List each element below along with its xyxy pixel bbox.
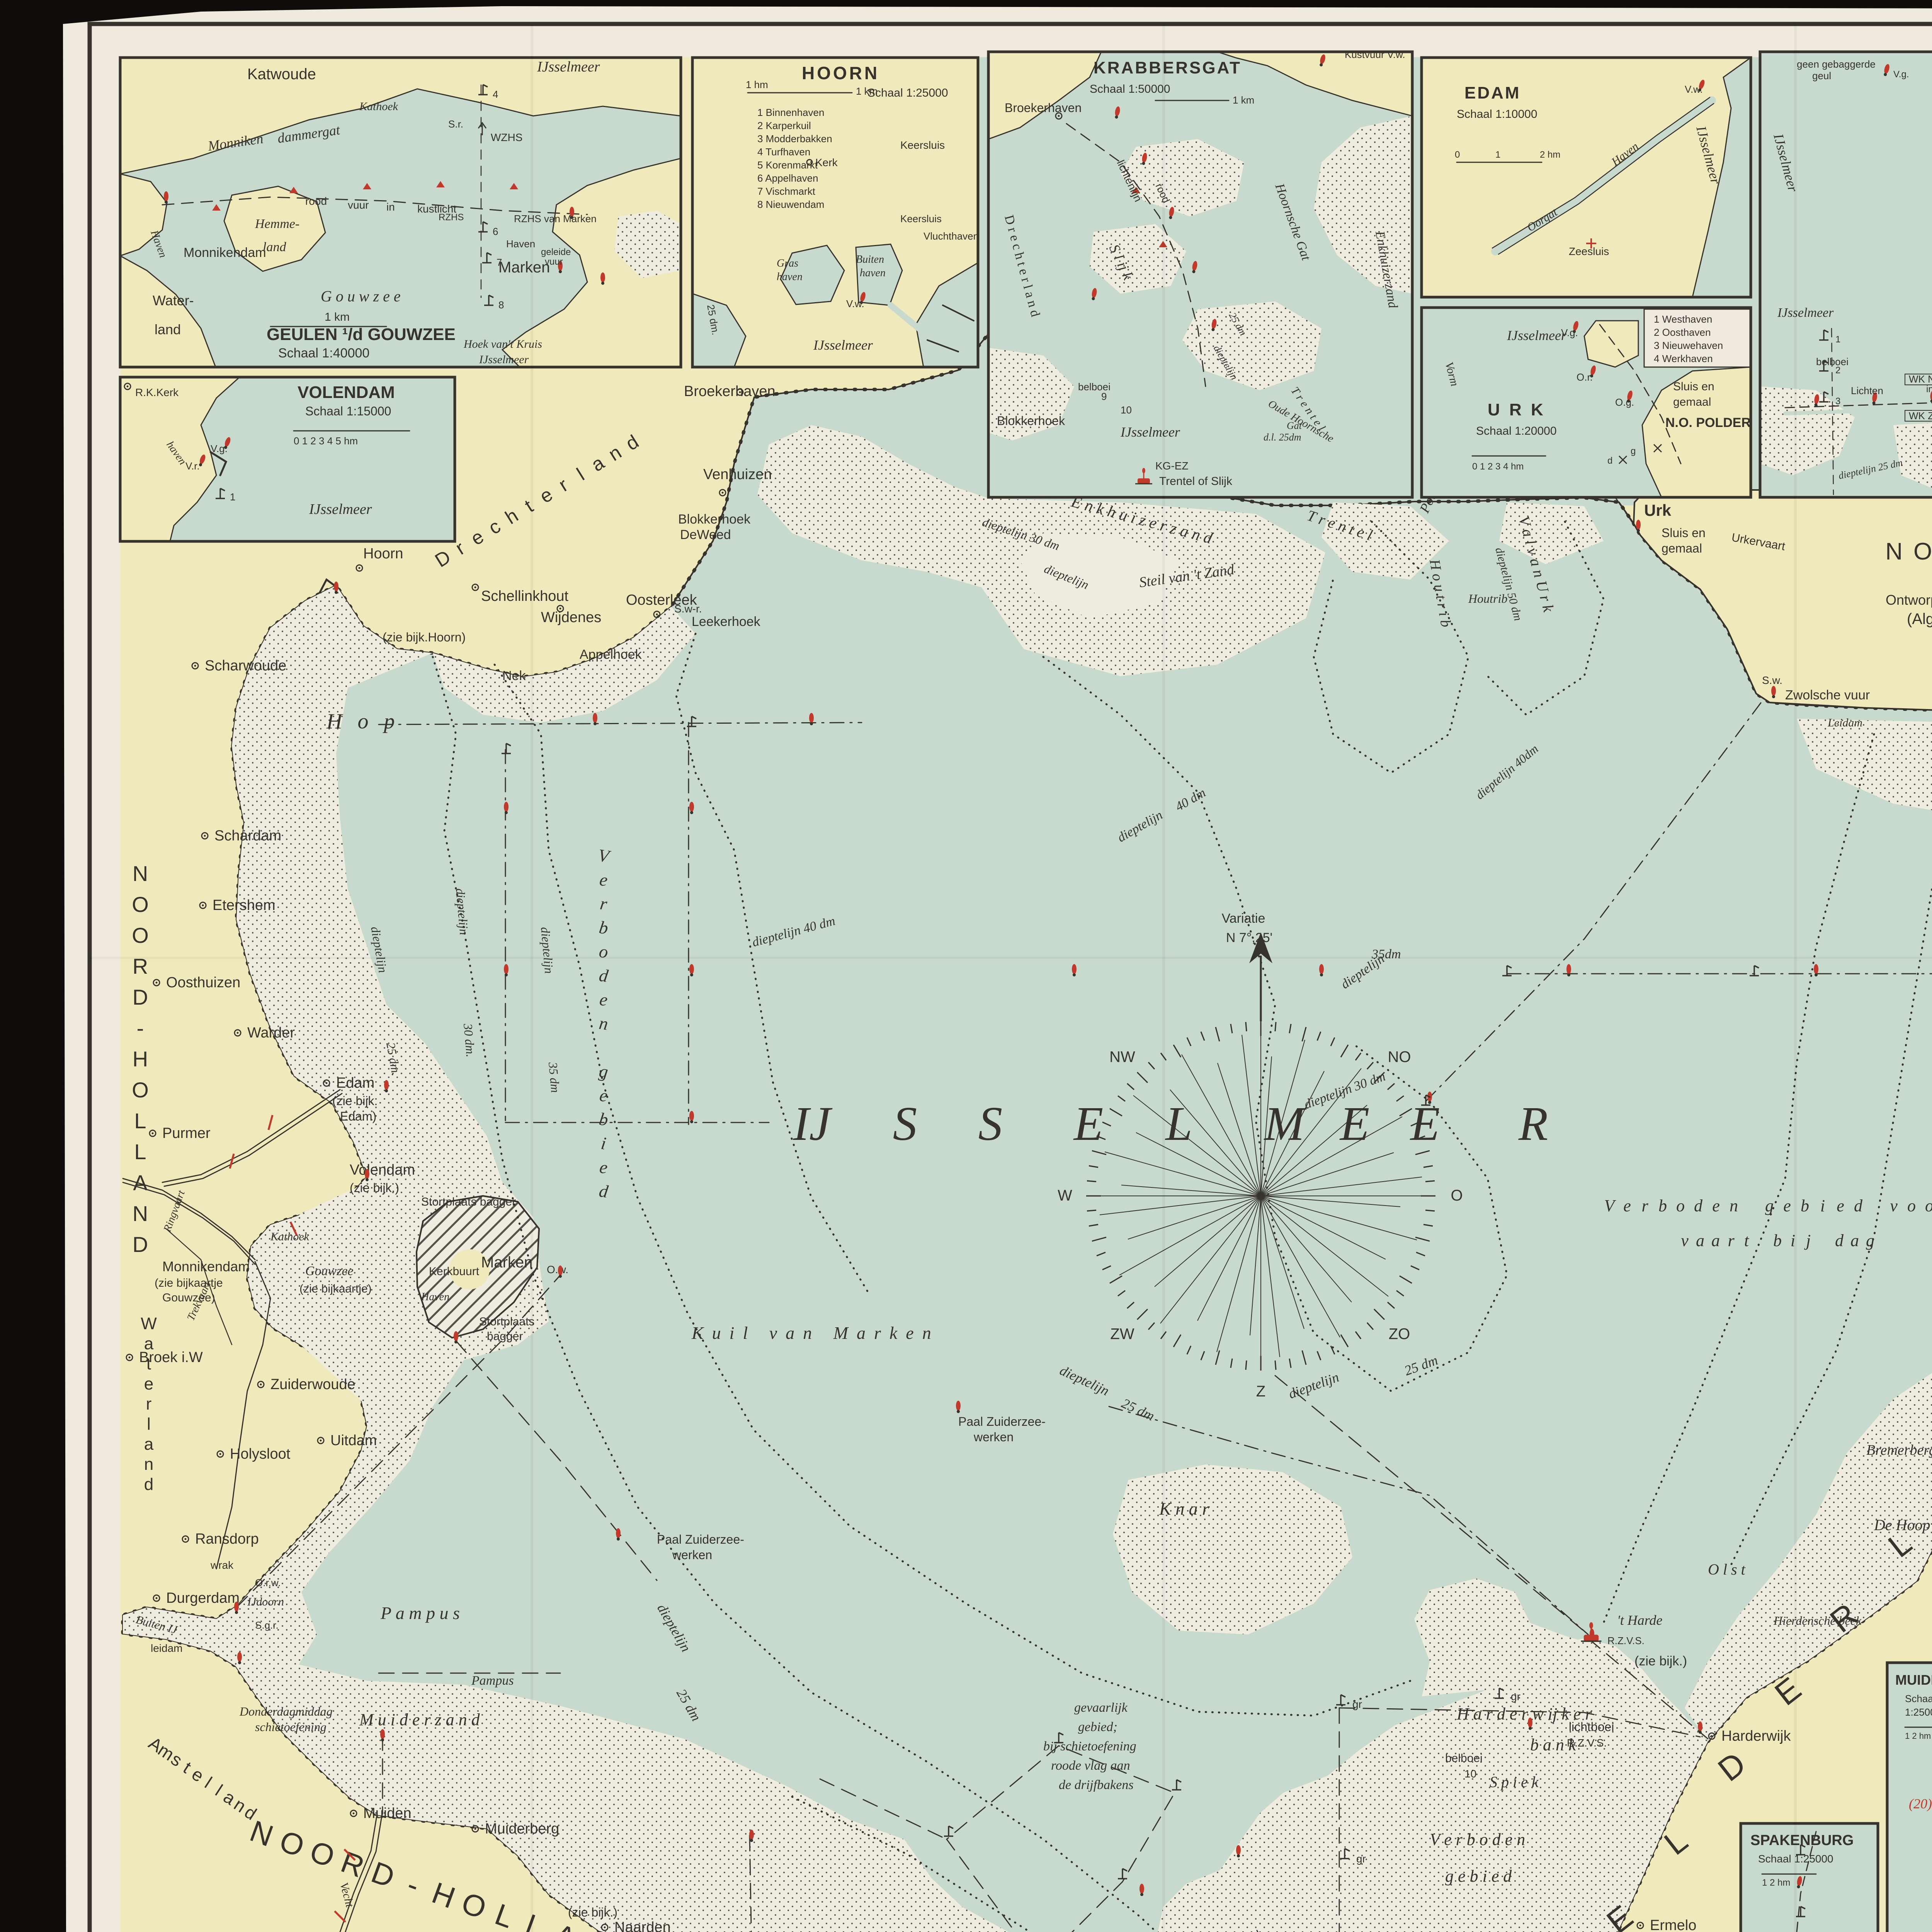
svg-text:Warder: Warder [247,1025,295,1041]
svg-text:IJsselmeer: IJsselmeer [1507,328,1567,343]
svg-text:(zie bijk.): (zie bijk.) [1634,1654,1687,1668]
svg-text:werken: werken [672,1548,712,1562]
svg-text:r: r [146,1395,152,1413]
svg-text:G o u w z e e: G o u w z e e [321,287,401,305]
svg-text:Zeesluis: Zeesluis [1569,245,1609,257]
svg-text:2 Karperkuil: 2 Karperkuil [757,120,811,131]
svg-text:De Hoop: De Hoop [1874,1516,1930,1534]
svg-text:Kuil van Marken: Kuil van Marken [691,1323,940,1343]
svg-text:Lichten: Lichten [1851,385,1883,396]
svg-text:b: b [1658,1196,1667,1215]
svg-text:Pampus: Pampus [471,1673,514,1688]
svg-text:d.l. 25dm: d.l. 25dm [1264,432,1301,443]
svg-text:Katwoude: Katwoude [247,66,316,83]
svg-text:Edam: Edam [336,1075,374,1091]
svg-text:MUIDEN: MUIDEN [1895,1672,1932,1688]
svg-text:haven: haven [860,267,886,279]
svg-text:L: L [134,1109,146,1133]
svg-text:K n a r: K n a r [1159,1499,1209,1519]
svg-text:NO: NO [1388,1048,1411,1065]
svg-text:(zie bijkaartje): (zie bijkaartje) [299,1282,372,1295]
svg-text:werken: werken [973,1430,1014,1444]
svg-text:Muiden: Muiden [363,1805,412,1821]
svg-text:Donderdagmiddag: Donderdagmiddag [239,1704,333,1718]
svg-text:Z: Z [1256,1383,1265,1400]
svg-text:v: v [1890,1196,1898,1215]
svg-text:O.r.w.: O.r.w. [255,1577,281,1588]
svg-text:V e r b o d e n: V e r b o d e n [1430,1830,1525,1849]
svg-text:W: W [1058,1187,1072,1204]
svg-text:1 2 hm: 1 2 hm [1762,1878,1790,1888]
svg-text:IJsselmeer: IJsselmeer [1120,424,1180,440]
svg-text:R.Z.V.S.: R.Z.V.S. [1567,1737,1607,1749]
svg-text:V.g.: V.g. [1893,69,1909,80]
svg-text:geul: geul [1812,70,1831,82]
svg-text:0 1 2 3 4 5 hm: 0 1 2 3 4 5 hm [294,435,358,447]
svg-text:Kathoek: Kathoek [359,100,398,113]
svg-text:Bremerberg: Bremerberg [1866,1442,1932,1458]
svg-text:2 Oosthaven: 2 Oosthaven [1654,327,1711,338]
svg-text:gr: gr [1511,1690,1520,1702]
svg-text:(zie bijk.: (zie bijk. [332,1094,378,1108]
svg-text:land: land [155,321,181,337]
svg-text:(zie bijk.): (zie bijk.) [350,1181,399,1195]
svg-text:gr: gr [1356,1853,1366,1865]
svg-text:O.g.: O.g. [1615,396,1634,408]
svg-text:E: E [1073,1097,1103,1151]
svg-text:2 hm: 2 hm [1540,150,1560,160]
svg-text:6: 6 [493,226,498,237]
svg-text:M u i d e r z a n d: M u i d e r z a n d [359,1710,480,1729]
svg-text:a: a [1850,1231,1859,1250]
svg-text:Stortplaats: Stortplaats [479,1315,534,1328]
svg-text:1: 1 [1835,334,1840,345]
svg-text:Ontworpen dorp: Ontworpen dorp [1886,592,1932,608]
svg-text:(Algodeldorp): (Algodeldorp) [1907,611,1932,628]
svg-text:7 Vischmarkt: 7 Vischmarkt [757,185,816,197]
svg-text:S.r.: S.r. [448,118,463,130]
svg-text:IJsselmeer: IJsselmeer [813,337,873,353]
svg-text:Schardam: Schardam [214,828,281,844]
svg-text:i: i [1820,1196,1825,1215]
svg-text:NOORDOOSTPOLDER: NOORDOOSTPOLDER [1885,538,1932,565]
svg-text:Urk: Urk [1644,501,1672,519]
svg-text:Broek i.W: Broek i.W [139,1349,203,1366]
svg-text:g: g [1765,1196,1774,1215]
svg-text:g: g [1631,446,1636,456]
svg-text:rood: rood [305,195,327,207]
svg-text:(zie bijk.): (zie bijk.) [568,1905,617,1919]
svg-text:gevaarlijk: gevaarlijk [1074,1701,1128,1715]
svg-text:RZHS: RZHS [439,212,464,223]
svg-text:Schaal 1:40000: Schaal 1:40000 [278,346,369,361]
svg-text:S.g.r.: S.g.r. [255,1619,279,1631]
svg-text:Uitdam: Uitdam [330,1432,377,1449]
svg-text:1: 1 [1495,150,1500,160]
svg-text:D: D [133,985,148,1009]
svg-text:10: 10 [1464,1768,1476,1780]
svg-text:35 dm: 35 dm [546,1061,563,1093]
svg-text:Paal Zuiderzee-: Paal Zuiderzee- [958,1415,1046,1429]
svg-text:ineen: ineen [1926,384,1932,395]
svg-text:e: e [1712,1196,1720,1215]
svg-text:schietoefening: schietoefening [255,1720,327,1734]
svg-text:n: n [144,1455,153,1474]
svg-text:g e b i e d: g e b i e d [1445,1867,1512,1886]
svg-text:bagger: bagger [487,1330,523,1343]
svg-text:r: r [1641,1196,1648,1215]
svg-text:Hemme-: Hemme- [255,217,299,231]
svg-text:1 km: 1 km [325,311,350,323]
svg-text:0: 0 [1455,150,1460,160]
svg-text:Broekerhaven: Broekerhaven [684,383,776,400]
svg-text:-: - [137,1016,144,1040]
svg-text:8 Nieuwendam: 8 Nieuwendam [757,199,824,210]
svg-text:IJsselmeer: IJsselmeer [309,501,372,517]
svg-text:D: D [133,1232,148,1257]
svg-text:Ransdorp: Ransdorp [195,1531,259,1547]
svg-text:Durgerdam: Durgerdam [166,1590,240,1606]
svg-text:Kerkbuurt: Kerkbuurt [429,1265,480,1278]
svg-text:1: 1 [230,491,235,503]
svg-text:Scharwoude: Scharwoude [205,658,286,674]
svg-text:Edam): Edam) [340,1109,376,1123]
svg-text:Etershem: Etershem [213,897,276,913]
svg-text:S: S [893,1097,917,1151]
svg-text:9: 9 [1101,391,1107,402]
svg-text:O l s t: O l s t [1708,1561,1746,1578]
svg-text:(20): (20) [1909,1796,1932,1811]
svg-text:lichtboei: lichtboei [1569,1720,1614,1734]
svg-text:Trentel of Slijk: Trentel of Slijk [1159,475,1233,488]
svg-text:Gras: Gras [777,257,798,269]
svg-text:Sluis en: Sluis en [1673,380,1714,393]
svg-text:(zie bijk.Hoorn): (zie bijk.Hoorn) [383,630,466,644]
svg-text:Venhuizen: Venhuizen [703,466,772,483]
svg-text:Sluis en: Sluis en [1662,526,1706,540]
svg-text:Gat: Gat [1287,420,1302,431]
svg-text:1 hm: 1 hm [746,79,768,90]
svg-text:1:25000: 1:25000 [1905,1706,1932,1718]
svg-text:L: L [134,1139,146,1164]
svg-text:Keersluis: Keersluis [900,139,945,151]
svg-text:IJsselmeer: IJsselmeer [479,353,529,366]
svg-text:a: a [1711,1231,1720,1250]
svg-text:N: N [133,1201,148,1226]
svg-text:Hoorn: Hoorn [363,546,403,562]
svg-text:(zie bijkaartje: (zie bijkaartje [155,1277,223,1289]
svg-text:S.w-r.: S.w-r. [674,603,702,615]
svg-text:1 Westhaven: 1 Westhaven [1654,313,1712,325]
svg-text:geen gebaggerde: geen gebaggerde [1797,58,1876,70]
svg-text:RZHS van Marken: RZHS van Marken [514,213,597,224]
svg-text:Schellinkhout: Schellinkhout [481,588,568,604]
svg-text:Harderwijk: Harderwijk [1721,1728,1791,1744]
svg-text:v: v [1681,1231,1689,1250]
svg-text:S.w.: S.w. [1762,674,1782,686]
svg-text:Monnikendam: Monnikendam [184,245,266,260]
svg-text:S p i e k: S p i e k [1490,1773,1539,1791]
svg-text:R.Z.V.S.: R.Z.V.S. [1607,1635,1645,1646]
svg-text:land: land [263,240,286,254]
svg-text:KG-EZ: KG-EZ [1155,460,1189,472]
svg-text:wrak: wrak [210,1559,234,1571]
svg-text:Schaal 1:20000: Schaal 1:20000 [1476,425,1557,437]
svg-text:vuur: vuur [545,257,563,267]
svg-text:IJsselmeer: IJsselmeer [1777,306,1834,320]
svg-text:Buiten: Buiten [856,253,884,265]
svg-text:N 7°,25': N 7°,25' [1226,930,1272,945]
svg-text:Oosthuizen: Oosthuizen [166,975,240,991]
svg-text:Blokkerhoek: Blokkerhoek [997,414,1065,428]
svg-text:DeWeed: DeWeed [680,527,731,542]
svg-text:Hierdensche beek: Hierdensche beek [1773,1614,1862,1628]
svg-text:4 Turfhaven: 4 Turfhaven [757,146,810,158]
svg-text:Marken: Marken [498,259,550,276]
svg-text:N: N [133,861,148,886]
svg-text:U R K: U R K [1488,400,1546,419]
svg-text:M: M [1264,1097,1307,1151]
svg-text:e: e [1837,1196,1844,1215]
svg-text:Kathoek: Kathoek [270,1230,310,1243]
svg-text:Zwolsche vuur: Zwolsche vuur [1785,688,1870,702]
svg-text:Wijdenes: Wijdenes [541,609,601,626]
svg-text:HOORN: HOORN [802,63,879,83]
svg-text:g: g [1866,1231,1874,1250]
svg-text:b: b [1773,1231,1782,1250]
svg-text:Purmer: Purmer [162,1125,211,1141]
svg-text:VOLENDAM: VOLENDAM [298,383,395,402]
svg-text:gebied;: gebied; [1078,1720,1117,1734]
svg-text:L: L [1165,1097,1192,1151]
svg-text:l: l [147,1415,151,1434]
svg-text:R.K.Kerk: R.K.Kerk [135,386,179,398]
svg-text:Nek: Nek [502,668,526,683]
svg-text:3 Modderbakken: 3 Modderbakken [757,133,832,145]
svg-text:Vluchthaven: Vluchthaven [923,230,979,242]
svg-text:KRABBERSGAT: KRABBERSGAT [1094,58,1242,77]
svg-text:V.r.: V.r. [185,460,200,472]
svg-text:e: e [1783,1196,1791,1215]
svg-text:WK ZWK: WK ZWK [1909,410,1932,422]
svg-text:in: in [386,201,395,213]
svg-text:Keersluis: Keersluis [900,213,942,224]
svg-text:Volendam: Volendam [350,1162,415,1178]
svg-text:H: H [133,1047,148,1071]
svg-text:t: t [1744,1231,1750,1250]
svg-text:O.r.: O.r. [1577,371,1593,383]
svg-text:S: S [978,1097,1003,1151]
svg-text:Kerk: Kerk [815,156,838,168]
svg-text:Paal Zuiderzee-: Paal Zuiderzee- [657,1532,744,1546]
svg-text:Variatie: Variatie [1222,911,1265,926]
svg-text:'t Harde: 't Harde [1617,1612,1662,1628]
svg-text:geleide: geleide [541,247,571,257]
svg-text:Marken: Marken [481,1254,532,1271]
svg-text:de drijfbakens: de drijfbakens [1059,1778,1134,1792]
svg-text:r: r [1728,1231,1735,1250]
svg-text:IJsselmeer: IJsselmeer [537,59,600,75]
svg-text:1 km: 1 km [1233,94,1254,106]
svg-text:10: 10 [1121,404,1132,416]
svg-text:0 1 2 3 4 hm: 0 1 2 3 4 hm [1472,461,1524,472]
svg-text:leidam: leidam [151,1642,182,1654]
svg-text:4 Werkhaven: 4 Werkhaven [1654,353,1713,364]
svg-text:b: b [1801,1196,1809,1215]
svg-text:O: O [132,923,149,947]
svg-text:o: o [1925,1196,1932,1215]
svg-text:ZO: ZO [1389,1326,1410,1343]
svg-text:Water-: Water- [153,293,194,308]
svg-text:WZHS: WZHS [491,131,522,143]
svg-text:d: d [1835,1231,1844,1250]
svg-text:WK NWK: WK NWK [1909,373,1932,385]
svg-text:Schaal 1:15000: Schaal 1:15000 [305,404,391,418]
svg-text:O: O [132,892,149,917]
svg-text:Naarden: Naarden [614,1919,671,1932]
svg-text:3: 3 [1835,396,1840,406]
svg-text:1 Binnenhaven: 1 Binnenhaven [757,107,824,118]
svg-text:Schaal 1:50000: Schaal 1:50000 [1090,83,1170,95]
svg-text:haven: haven [777,271,803,283]
svg-text:Holysloot: Holysloot [230,1446,291,1462]
svg-text:e: e [1623,1196,1631,1215]
svg-text:3 Nieuwehaven: 3 Nieuwehaven [1654,340,1723,351]
svg-text:o: o [1907,1196,1916,1215]
svg-text:gemaal: gemaal [1662,541,1702,555]
svg-text:o: o [1676,1196,1685,1215]
svg-text:e: e [144,1374,153,1393]
svg-text:Leekerhoek: Leekerhoek [692,614,761,629]
svg-text:P a m p u s: P a m p u s [380,1603,460,1623]
svg-text:4: 4 [493,88,498,100]
svg-text:O: O [132,1078,149,1102]
svg-text:gr: gr [1352,1698,1362,1710]
svg-text:ZW: ZW [1110,1326,1134,1343]
svg-text:Schaal 1:10000: Schaal 1:10000 [1457,108,1537,121]
svg-text:Stortplaats bagger: Stortplaats bagger [421,1196,516,1208]
svg-text:a: a [1696,1231,1704,1250]
svg-text:a: a [144,1435,154,1454]
svg-text:EDAM: EDAM [1464,83,1521,102]
svg-text:Muiderberg: Muiderberg [485,1821,559,1837]
svg-text:30 dm.: 30 dm. [461,1022,478,1058]
svg-text:Blokkerhoek: Blokkerhoek [678,512,751,527]
svg-text:bij schietoefening: bij schietoefening [1043,1739,1136,1753]
svg-text:n: n [1730,1196,1738,1215]
svg-text:E: E [1339,1097,1369,1151]
svg-text:roode vlag aan: roode vlag aan [1051,1759,1130,1773]
svg-text:W: W [141,1314,157,1333]
svg-text:vuur: vuur [348,199,369,211]
svg-text:Broekerhaven: Broekerhaven [1005,101,1082,115]
svg-text:1 2 hm: 1 2 hm [1905,1731,1931,1741]
svg-text:O: O [1451,1187,1463,1204]
svg-text:Schaal 1:25000: Schaal 1:25000 [867,87,948,99]
svg-text:IJdoorn: IJdoorn [247,1595,284,1608]
svg-text:Haven: Haven [421,1291,449,1303]
svg-text:belboei: belboei [1445,1752,1483,1765]
svg-text:Schaal: Schaal [1905,1693,1932,1704]
svg-text:d: d [1607,456,1612,466]
svg-text:IJ: IJ [793,1097,833,1151]
svg-text:Hoek van't Kruis: Hoek van't Kruis [463,338,542,350]
svg-text:Ermelo: Ermelo [1650,1917,1696,1932]
svg-text:6 Appelhaven: 6 Appelhaven [757,172,818,184]
svg-text:d: d [144,1475,153,1494]
svg-text:d: d [1854,1196,1863,1215]
svg-text:Houtrib: Houtrib [1468,592,1507,605]
svg-text:NW: NW [1109,1048,1135,1065]
svg-text:R: R [1518,1097,1548,1151]
svg-text:Gouwzee: Gouwzee [305,1264,354,1278]
svg-text:d: d [1694,1196,1703,1215]
svg-text:Zuiderwoude: Zuiderwoude [270,1376,355,1393]
svg-text:N.O. POLDER: N.O. POLDER [1665,415,1751,430]
svg-text:8: 8 [498,299,504,311]
svg-text:7: 7 [497,257,502,268]
svg-text:O.w.: O.w. [547,1264,568,1276]
svg-text:GEULEN ¹/d GOUWZEE: GEULEN ¹/d GOUWZEE [267,325,456,344]
svg-text:Appelhoek: Appelhoek [580,647,642,662]
svg-text:2: 2 [1835,365,1840,376]
svg-text:gemaal: gemaal [1673,396,1711,408]
svg-text:Hop: Hop [326,709,410,733]
svg-text:Leidam: Leidam [1827,716,1862,729]
svg-text:Monnikendam: Monnikendam [162,1259,250,1274]
